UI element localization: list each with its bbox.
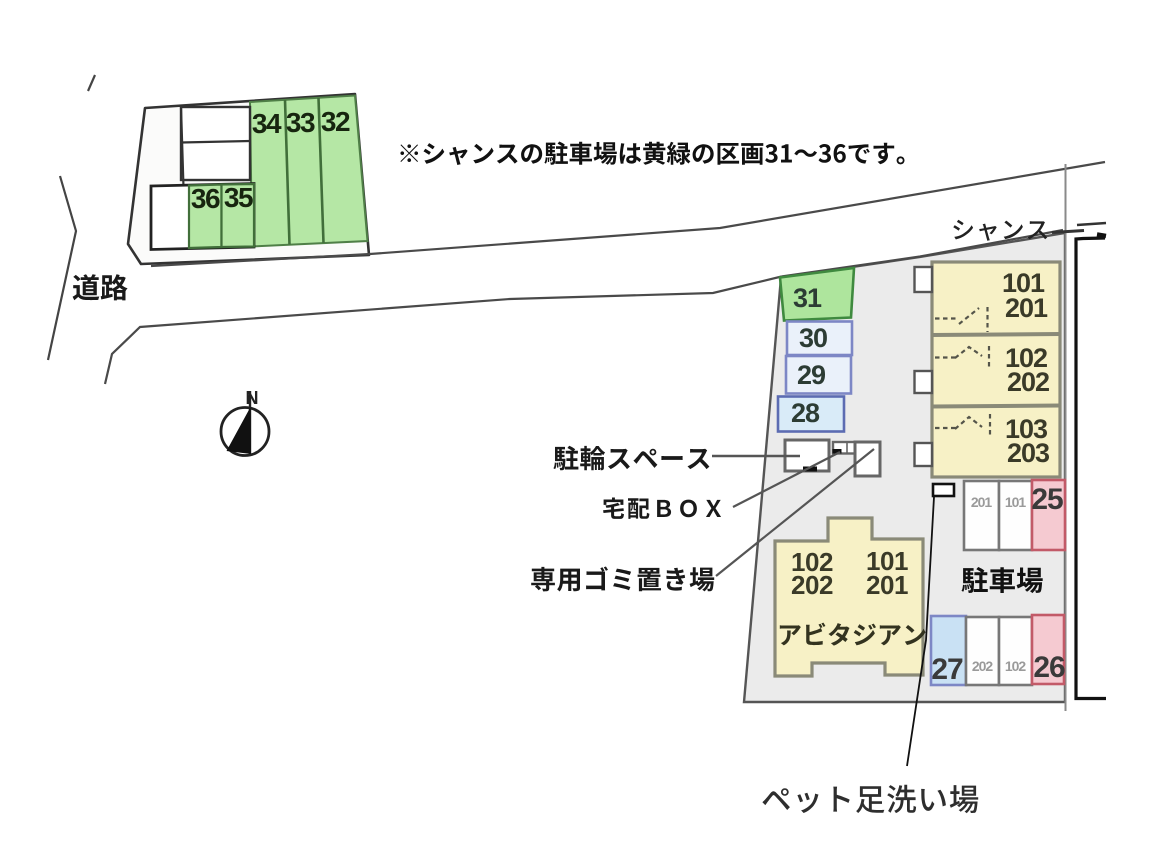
svg-text:31: 31 — [793, 283, 822, 313]
svg-text:202: 202 — [972, 658, 994, 674]
svg-text:34: 34 — [252, 108, 282, 139]
svg-text:102: 102 — [1005, 658, 1027, 674]
svg-text:201: 201 — [866, 570, 908, 600]
svg-text:201: 201 — [971, 494, 993, 510]
svg-text:32: 32 — [321, 106, 350, 137]
svg-text:203: 203 — [1007, 438, 1050, 468]
svg-text:30: 30 — [799, 323, 827, 353]
svg-text:36: 36 — [191, 183, 220, 214]
svg-text:29: 29 — [797, 360, 826, 390]
svg-text:202: 202 — [1007, 367, 1049, 397]
svg-text:25: 25 — [1031, 483, 1063, 516]
svg-text:N: N — [246, 388, 259, 408]
svg-text:101: 101 — [1005, 494, 1027, 510]
svg-text:27: 27 — [931, 653, 963, 686]
svg-text:35: 35 — [224, 182, 253, 213]
svg-text:26: 26 — [1033, 651, 1065, 684]
svg-text:33: 33 — [286, 107, 315, 138]
svg-text:201: 201 — [1005, 293, 1048, 323]
svg-text:202: 202 — [791, 570, 833, 600]
svg-text:28: 28 — [791, 398, 820, 428]
